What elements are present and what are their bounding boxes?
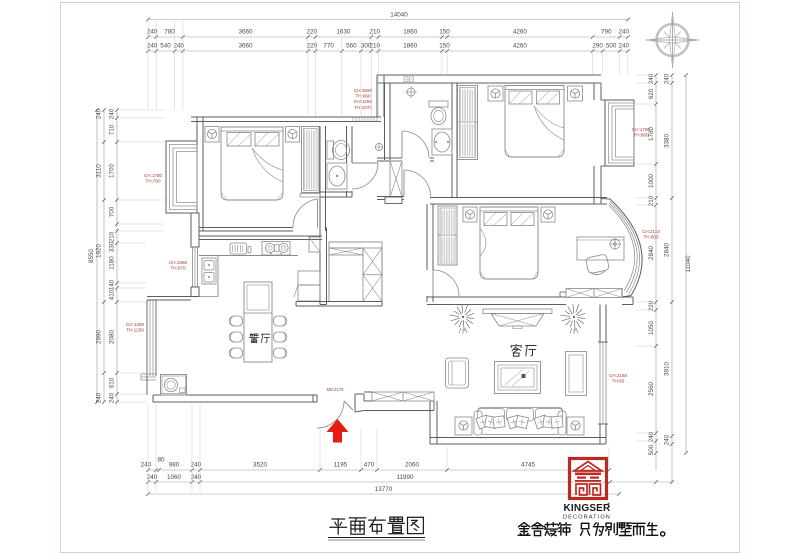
- svg-text:1700: 1700: [109, 164, 116, 179]
- svg-text:2060: 2060: [405, 462, 420, 469]
- svg-text:210: 210: [648, 195, 655, 206]
- svg-text:2840: 2840: [648, 246, 655, 261]
- svg-text:290: 290: [592, 43, 603, 50]
- svg-text:500: 500: [606, 43, 617, 50]
- svg-text:220: 220: [306, 29, 317, 36]
- svg-text:1860: 1860: [403, 43, 418, 50]
- svg-text:DECORATION: DECORATION: [563, 515, 611, 521]
- svg-text:140: 140: [109, 279, 116, 290]
- svg-text:1760: 1760: [648, 127, 655, 142]
- svg-text:980: 980: [169, 462, 180, 469]
- svg-text:1195: 1195: [334, 462, 348, 469]
- svg-text:N: N: [652, 38, 655, 43]
- svg-text:240: 240: [664, 73, 671, 84]
- svg-text:240: 240: [96, 108, 103, 119]
- svg-text:2690: 2690: [96, 330, 103, 345]
- svg-text:470: 470: [364, 462, 375, 469]
- svg-text:240: 240: [141, 462, 152, 469]
- svg-text:210: 210: [370, 29, 381, 36]
- svg-text:TH:660: TH:660: [633, 133, 649, 138]
- svg-text:240: 240: [619, 43, 630, 50]
- svg-text:240: 240: [619, 29, 630, 36]
- svg-text:700: 700: [109, 206, 116, 217]
- svg-text:11040: 11040: [685, 255, 692, 273]
- svg-text:4260: 4260: [513, 43, 528, 50]
- svg-text:3660: 3660: [238, 43, 253, 50]
- svg-text:150: 150: [439, 43, 450, 50]
- svg-text:710: 710: [109, 124, 116, 135]
- svg-text:8550: 8550: [88, 249, 95, 264]
- svg-text:1630: 1630: [336, 29, 351, 36]
- svg-text:240: 240: [109, 392, 116, 403]
- svg-text:TH:1250: TH:1250: [126, 328, 144, 333]
- svg-text:410: 410: [109, 289, 116, 300]
- svg-text:1860: 1860: [403, 29, 418, 36]
- svg-text:620: 620: [648, 88, 655, 99]
- svg-text:150: 150: [439, 29, 450, 36]
- svg-text:560: 560: [346, 43, 357, 50]
- svg-text:240: 240: [96, 392, 103, 403]
- svg-text:1000: 1000: [648, 174, 655, 189]
- svg-text:TH:960: TH:960: [355, 94, 371, 99]
- svg-text:TH:970: TH:970: [170, 266, 186, 271]
- svg-text:TH:700: TH:700: [145, 179, 161, 184]
- svg-text:80: 80: [157, 457, 165, 464]
- svg-text:11990: 11990: [396, 474, 414, 481]
- svg-text:540: 540: [160, 43, 171, 50]
- svg-text:3110: 3110: [96, 164, 103, 178]
- svg-text:3910: 3910: [664, 362, 671, 377]
- svg-text:1180: 1180: [109, 256, 116, 270]
- svg-text:CH:2160: CH:2160: [609, 373, 628, 378]
- svg-text:3660: 3660: [238, 29, 253, 36]
- svg-text:TH:1070: TH:1070: [354, 105, 372, 110]
- svg-text:1050: 1050: [648, 321, 655, 336]
- svg-text:CH:2110: CH:2110: [642, 229, 660, 234]
- svg-text:240: 240: [109, 108, 116, 119]
- svg-text:610: 610: [109, 377, 116, 388]
- svg-text:CH:3560: CH:3560: [354, 88, 373, 93]
- svg-text:3380: 3380: [664, 134, 671, 149]
- svg-text:2840: 2840: [664, 243, 671, 258]
- svg-text:330: 330: [109, 241, 116, 252]
- svg-text:240: 240: [664, 434, 671, 445]
- svg-text:14040: 14040: [390, 12, 408, 19]
- svg-text:3520: 3520: [253, 462, 268, 469]
- svg-text:1920: 1920: [96, 244, 103, 259]
- svg-text:2080: 2080: [109, 330, 116, 345]
- svg-text:4745: 4745: [521, 462, 536, 469]
- svg-text:4260: 4260: [513, 29, 528, 36]
- svg-text:CH:1780: CH:1780: [144, 173, 163, 178]
- svg-text:13770: 13770: [375, 486, 393, 493]
- svg-text:780: 780: [164, 29, 175, 36]
- svg-text:MD:2175: MD:2175: [327, 387, 345, 392]
- svg-text:CH:1260: CH:1260: [354, 99, 373, 104]
- svg-text:500: 500: [648, 444, 655, 455]
- svg-text:CH:1260: CH:1260: [126, 322, 145, 327]
- svg-text:2560: 2560: [648, 382, 655, 397]
- svg-text:TH:600: TH:600: [643, 235, 659, 240]
- svg-text:1060: 1060: [167, 474, 182, 481]
- svg-text:210: 210: [109, 231, 116, 242]
- svg-text:770: 770: [323, 43, 334, 50]
- svg-text:790: 790: [601, 29, 612, 36]
- svg-text:CH:1960: CH:1960: [169, 260, 188, 265]
- svg-text:TH:60: TH:60: [612, 379, 625, 384]
- svg-text:KINGSER: KINGSER: [564, 503, 612, 514]
